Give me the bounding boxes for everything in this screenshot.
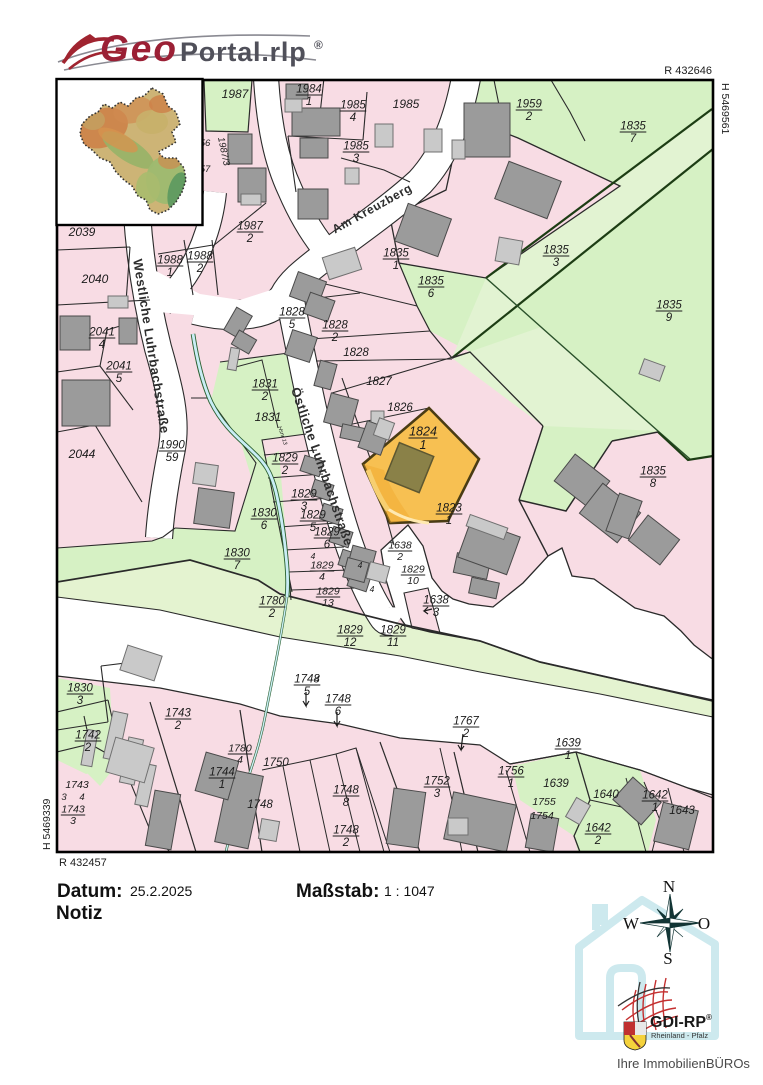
svg-text:12: 12 xyxy=(344,637,357,649)
svg-text:2: 2 xyxy=(174,720,182,732)
svg-text:1642: 1642 xyxy=(585,823,611,835)
svg-text:2: 2 xyxy=(281,465,289,477)
svg-text:3: 3 xyxy=(61,792,67,803)
svg-text:1985: 1985 xyxy=(393,97,420,111)
svg-text:1985: 1985 xyxy=(343,141,369,153)
svg-text:1642: 1642 xyxy=(642,790,668,802)
svg-text:4: 4 xyxy=(99,339,105,351)
svg-text:2: 2 xyxy=(594,835,602,847)
svg-text:1643: 1643 xyxy=(669,805,695,817)
svg-text:1831: 1831 xyxy=(255,410,282,424)
svg-text:®: ® xyxy=(314,38,323,52)
svg-text:1828: 1828 xyxy=(279,307,305,319)
svg-text:1828: 1828 xyxy=(343,347,369,359)
svg-text:1987: 1987 xyxy=(222,87,250,101)
svg-text:11: 11 xyxy=(387,637,399,649)
svg-text:1835: 1835 xyxy=(543,245,569,257)
svg-text:1829: 1829 xyxy=(380,625,406,637)
svg-text:1835: 1835 xyxy=(418,276,444,288)
svg-text:1985: 1985 xyxy=(340,100,366,112)
svg-text:Notiz: Notiz xyxy=(56,903,102,924)
svg-text:Geo: Geo xyxy=(100,28,178,69)
svg-text:1826: 1826 xyxy=(387,402,413,414)
svg-text:1: 1 xyxy=(446,515,452,527)
svg-text:25.2.2025: 25.2.2025 xyxy=(130,883,192,899)
svg-text:2039: 2039 xyxy=(68,225,96,239)
svg-text:1831: 1831 xyxy=(252,379,278,391)
svg-text:Portal.rlp: Portal.rlp xyxy=(180,37,307,67)
svg-text:3: 3 xyxy=(433,607,440,619)
svg-text:Ihre ImmobilienBÜROs: Ihre ImmobilienBÜROs xyxy=(617,1056,750,1071)
svg-text:8: 8 xyxy=(343,797,350,809)
svg-text:2: 2 xyxy=(261,391,269,403)
svg-text:1743: 1743 xyxy=(65,779,89,791)
svg-text:1638: 1638 xyxy=(423,595,449,607)
svg-text:1744: 1744 xyxy=(209,767,235,779)
svg-text:2: 2 xyxy=(268,608,276,620)
svg-text:GDI-RP: GDI-RP xyxy=(650,1014,706,1031)
svg-text:3: 3 xyxy=(70,815,76,827)
svg-text:2: 2 xyxy=(342,837,350,849)
svg-text:1743: 1743 xyxy=(165,708,191,720)
svg-text:1835: 1835 xyxy=(640,466,666,478)
svg-text:7: 7 xyxy=(234,560,241,572)
svg-text:1750: 1750 xyxy=(263,757,289,769)
svg-text:2: 2 xyxy=(84,742,92,754)
svg-text:R 432646: R 432646 xyxy=(664,65,712,77)
svg-text:2044: 2044 xyxy=(68,447,96,461)
svg-text:1748: 1748 xyxy=(333,785,359,797)
svg-text:S: S xyxy=(663,949,672,968)
svg-text:N: N xyxy=(663,877,675,896)
svg-text:3: 3 xyxy=(553,257,560,269)
svg-text:7: 7 xyxy=(630,133,637,145)
svg-text:6: 6 xyxy=(335,706,342,718)
svg-text:1987: 1987 xyxy=(237,221,263,233)
svg-text:1743: 1743 xyxy=(61,804,85,816)
svg-text:1829: 1829 xyxy=(272,453,298,465)
svg-text:1959: 1959 xyxy=(516,99,542,111)
svg-text:1: 1 xyxy=(508,778,514,790)
svg-text:1640: 1640 xyxy=(593,789,619,801)
svg-text:13: 13 xyxy=(322,597,334,609)
svg-text:5: 5 xyxy=(304,686,311,698)
svg-text:1755: 1755 xyxy=(532,796,556,808)
svg-text:4: 4 xyxy=(311,551,316,561)
svg-text:1829: 1829 xyxy=(310,560,334,572)
svg-text:1: 1 xyxy=(565,750,571,762)
svg-text:10: 10 xyxy=(407,575,419,587)
svg-text:Rheinland - Pfalz: Rheinland - Pfalz xyxy=(651,1031,708,1040)
svg-text:1829: 1829 xyxy=(337,625,363,637)
svg-text:1988: 1988 xyxy=(157,255,183,267)
svg-text:1988: 1988 xyxy=(187,251,213,263)
svg-text:1824: 1824 xyxy=(409,425,437,439)
svg-text:2: 2 xyxy=(196,263,204,275)
svg-text:W: W xyxy=(623,914,640,933)
svg-text:1748: 1748 xyxy=(247,799,273,811)
svg-text:1639: 1639 xyxy=(543,778,569,790)
svg-text:1830: 1830 xyxy=(224,548,250,560)
svg-text:1: 1 xyxy=(167,267,173,279)
svg-text:2040: 2040 xyxy=(81,272,109,286)
svg-text:Datum:: Datum: xyxy=(57,881,122,902)
svg-text:2041: 2041 xyxy=(105,361,132,373)
svg-text:2: 2 xyxy=(246,233,254,245)
svg-text:4: 4 xyxy=(370,584,375,594)
svg-text:1748: 1748 xyxy=(325,694,351,706)
svg-text:3: 3 xyxy=(434,788,441,800)
svg-text:4: 4 xyxy=(350,112,356,124)
svg-text:1828: 1828 xyxy=(322,320,348,332)
svg-text:H 5469561: H 5469561 xyxy=(719,83,731,135)
svg-text:1: 1 xyxy=(393,260,399,272)
svg-text:2041: 2041 xyxy=(88,327,115,339)
svg-text:1827: 1827 xyxy=(366,376,392,388)
svg-text:1780: 1780 xyxy=(259,596,285,608)
svg-text:9: 9 xyxy=(666,312,673,324)
svg-text:1835: 1835 xyxy=(620,121,646,133)
svg-text:1829: 1829 xyxy=(300,510,326,522)
svg-text:2: 2 xyxy=(396,551,403,563)
svg-text:5: 5 xyxy=(289,319,296,331)
svg-text:2: 2 xyxy=(331,332,339,344)
svg-text:5: 5 xyxy=(116,373,123,385)
svg-text:1829: 1829 xyxy=(291,489,317,501)
svg-text:6: 6 xyxy=(324,539,331,551)
svg-text:1752: 1752 xyxy=(424,776,450,788)
svg-text:8: 8 xyxy=(650,478,657,490)
svg-text:2: 2 xyxy=(525,111,533,123)
svg-text:1: 1 xyxy=(219,779,225,791)
svg-text:1835: 1835 xyxy=(383,248,409,260)
svg-text:1: 1 xyxy=(420,438,427,452)
svg-text:1748: 1748 xyxy=(333,825,359,837)
svg-text:3: 3 xyxy=(77,695,84,707)
svg-text:1829: 1829 xyxy=(316,586,340,598)
svg-text:1780: 1780 xyxy=(228,743,252,755)
svg-text:1742: 1742 xyxy=(75,730,101,742)
svg-text:4: 4 xyxy=(358,560,363,570)
svg-text:1639: 1639 xyxy=(555,738,581,750)
svg-text:1835: 1835 xyxy=(656,300,682,312)
svg-text:6: 6 xyxy=(428,288,435,300)
svg-text:1984: 1984 xyxy=(296,84,322,96)
svg-text:1830: 1830 xyxy=(67,683,93,695)
svg-text:1638: 1638 xyxy=(388,540,412,552)
svg-text:1830: 1830 xyxy=(251,508,277,520)
svg-text:1756: 1756 xyxy=(498,766,524,778)
svg-text:Maßstab:: Maßstab: xyxy=(296,881,379,902)
svg-text:1990: 1990 xyxy=(159,440,185,452)
svg-text:1823: 1823 xyxy=(436,503,462,515)
svg-text:4: 4 xyxy=(319,571,325,583)
svg-text:R 432457: R 432457 xyxy=(59,857,107,869)
svg-text:1767: 1767 xyxy=(453,716,479,728)
svg-text:1: 1 xyxy=(306,96,312,108)
svg-text:4: 4 xyxy=(315,674,320,684)
svg-text:O: O xyxy=(698,914,710,933)
svg-text:4: 4 xyxy=(79,792,84,803)
svg-text:6: 6 xyxy=(261,520,268,532)
svg-text:1: 1 xyxy=(652,802,658,814)
svg-text:59: 59 xyxy=(166,452,179,464)
svg-text:1754: 1754 xyxy=(530,810,554,822)
svg-text:1829: 1829 xyxy=(401,564,425,576)
svg-text:3: 3 xyxy=(353,153,360,165)
svg-text:®: ® xyxy=(706,1013,712,1022)
svg-text:4: 4 xyxy=(237,754,243,766)
svg-text:H 5469339: H 5469339 xyxy=(41,798,53,850)
svg-text:1 : 1047: 1 : 1047 xyxy=(384,883,435,899)
